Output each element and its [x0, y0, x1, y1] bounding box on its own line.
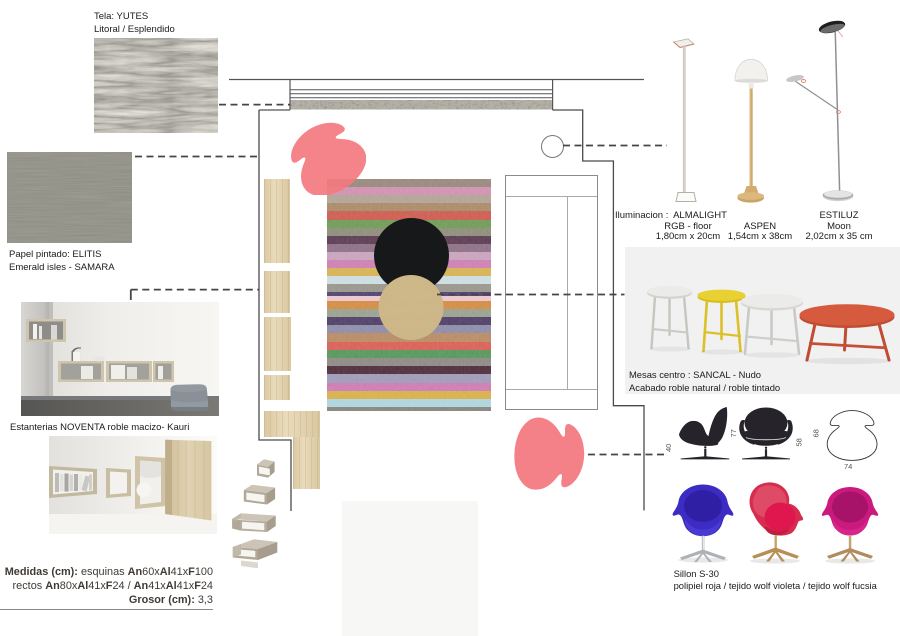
svg-text:77: 77 — [729, 429, 738, 437]
svg-text:40: 40 — [664, 444, 673, 452]
svg-text:58: 58 — [795, 438, 804, 446]
svg-text:74: 74 — [844, 462, 852, 471]
svg-text:68: 68 — [812, 429, 821, 437]
